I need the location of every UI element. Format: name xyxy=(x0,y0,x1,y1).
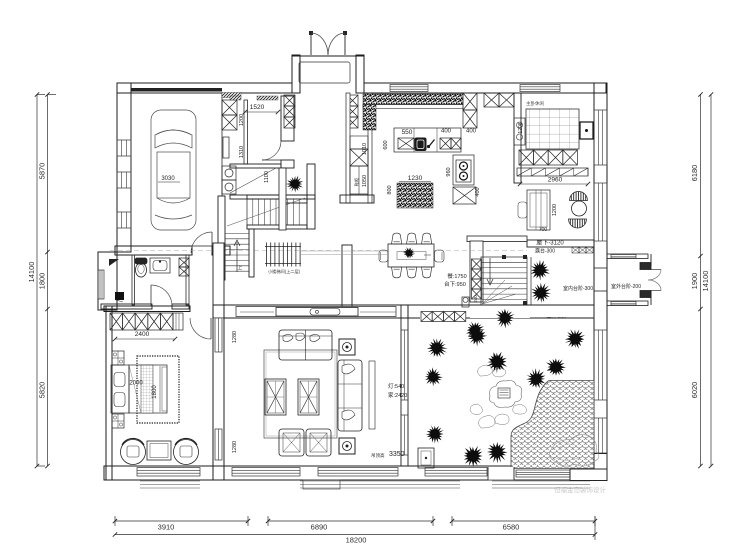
svg-text:3030: 3030 xyxy=(161,176,175,182)
svg-text:1100: 1100 xyxy=(264,171,270,183)
svg-text:3910: 3910 xyxy=(158,523,175,532)
svg-text:餐:1750: 餐:1750 xyxy=(447,272,466,280)
svg-text:800: 800 xyxy=(387,185,393,194)
svg-text:6890: 6890 xyxy=(311,523,328,532)
svg-text:1050: 1050 xyxy=(362,175,368,187)
svg-text:室外台阶-200: 室外台阶-200 xyxy=(611,283,641,290)
svg-text:6580: 6580 xyxy=(503,523,520,532)
svg-text:2000: 2000 xyxy=(129,381,143,387)
svg-text:14100: 14100 xyxy=(27,262,36,283)
svg-text:1230: 1230 xyxy=(408,175,423,182)
svg-text:恒福金岛装饰设计: 恒福金岛装饰设计 xyxy=(554,485,607,494)
svg-text:5870: 5870 xyxy=(38,163,47,180)
svg-text:上: 上 xyxy=(238,264,243,270)
svg-text:鞋柜: 鞋柜 xyxy=(353,178,360,186)
svg-text:600: 600 xyxy=(383,140,389,149)
svg-text:700: 700 xyxy=(539,227,548,233)
svg-text:240: 240 xyxy=(473,295,478,303)
svg-text:400: 400 xyxy=(441,129,452,135)
svg-text:露台-300: 露台-300 xyxy=(535,248,555,255)
svg-text:18200: 18200 xyxy=(346,536,367,545)
svg-text:960: 960 xyxy=(446,167,452,176)
svg-text:550: 550 xyxy=(402,129,413,136)
svg-text:2400: 2400 xyxy=(135,331,150,338)
svg-text:6180: 6180 xyxy=(690,165,699,182)
svg-text:1010: 1010 xyxy=(362,143,368,155)
svg-text:5820: 5820 xyxy=(38,382,47,399)
svg-text:家:2420: 家:2420 xyxy=(388,391,407,399)
svg-text:1800: 1800 xyxy=(38,273,47,290)
svg-text:6020: 6020 xyxy=(690,382,699,399)
svg-text:吊顶高: 吊顶高 xyxy=(371,452,385,459)
svg-text:14100: 14100 xyxy=(701,271,710,292)
svg-text:1200: 1200 xyxy=(552,204,558,216)
svg-text:1520: 1520 xyxy=(250,104,265,111)
svg-text:2960: 2960 xyxy=(548,177,563,184)
svg-text:室内台阶-300: 室内台阶-300 xyxy=(563,285,593,292)
svg-text:主卧休闲: 主卧休闲 xyxy=(526,100,544,107)
svg-text:1800: 1800 xyxy=(152,385,158,399)
svg-text:小楼梯间(上二层): 小楼梯间(上二层) xyxy=(268,268,301,275)
svg-text:屋下-3120: 屋下-3120 xyxy=(536,240,564,247)
svg-text:400: 400 xyxy=(466,129,477,135)
svg-text:1280: 1280 xyxy=(232,331,238,343)
svg-text:1900: 1900 xyxy=(690,273,699,290)
svg-text:3350: 3350 xyxy=(389,451,405,458)
svg-text:400: 400 xyxy=(475,187,481,196)
svg-text:灯:540: 灯:540 xyxy=(388,382,404,390)
svg-text:1280: 1280 xyxy=(232,441,238,453)
svg-text:台下:950: 台下:950 xyxy=(444,280,466,288)
